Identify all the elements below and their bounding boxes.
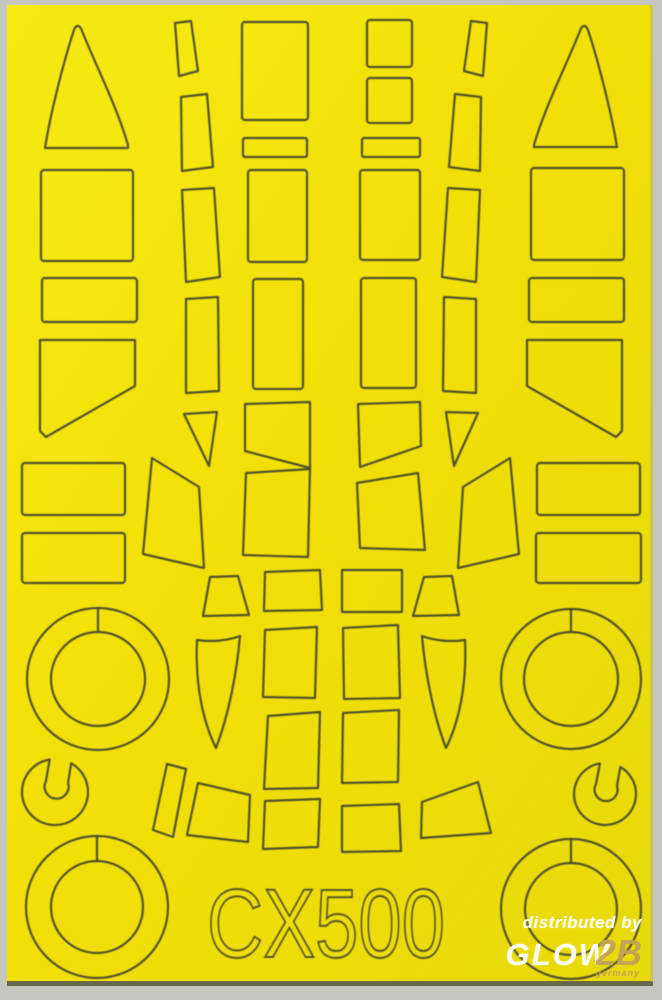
mask-sheet-scan: CX500 distributed by GLOW2B germany (0, 0, 662, 1000)
mask-sheet-svg: CX500 (0, 0, 662, 1000)
sheet-right-edge (650, 5, 653, 982)
sheet-bottom-edge (7, 981, 653, 986)
sheet-code: CX500 (207, 869, 445, 978)
